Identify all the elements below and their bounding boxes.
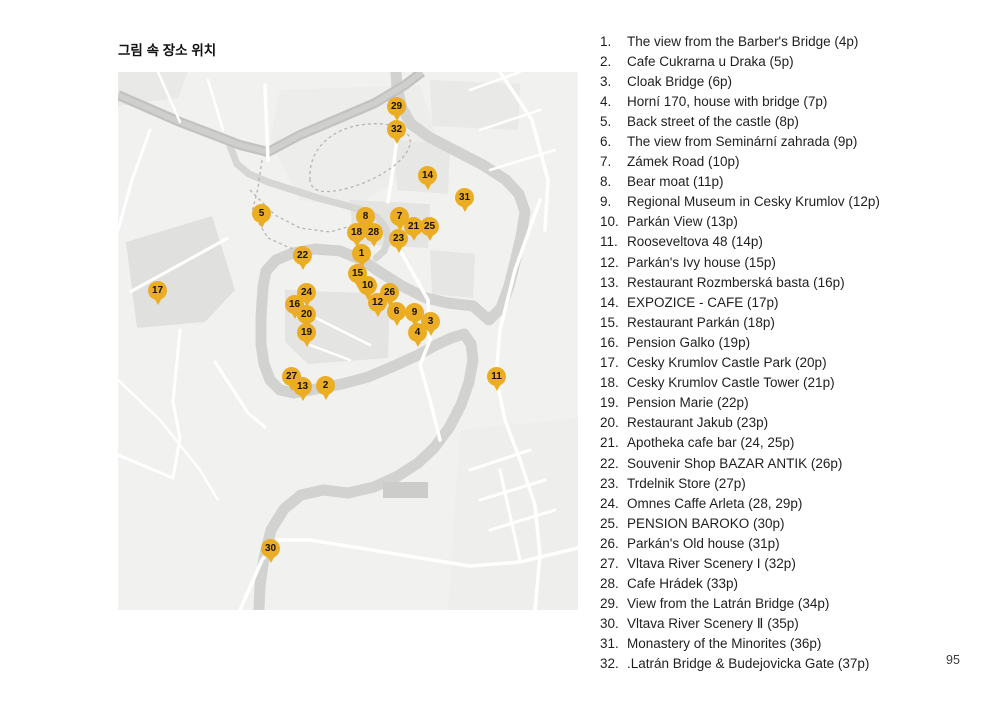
list-item: 15.Restaurant Parkán (18p)	[600, 312, 900, 332]
map-pin-2: 2	[316, 376, 335, 395]
list-item-label: EXPOZICE - CAFE (17p)	[627, 295, 779, 310]
building-block	[430, 250, 475, 298]
list-item-label: .Latrán Bridge & Budejovicka Gate (37p)	[627, 656, 869, 671]
list-item: 2.Cafe Cukrarna u Draka (5p)	[600, 51, 900, 71]
map-pin-6: 6	[387, 302, 406, 321]
list-item: 19.Pension Marie (22p)	[600, 393, 900, 413]
list-item-label: Cesky Krumlov Castle Tower (21p)	[627, 375, 835, 390]
list-item-number: 24.	[600, 496, 627, 511]
list-item-number: 16.	[600, 335, 627, 350]
list-item-number: 25.	[600, 516, 627, 531]
map-pin-29: 29	[387, 97, 406, 116]
list-item: 32..Latrán Bridge & Budejovicka Gate (37…	[600, 654, 900, 674]
list-item: 22.Souvenir Shop BAZAR ANTIK (26p)	[600, 453, 900, 473]
list-item: 3.Cloak Bridge (6p)	[600, 71, 900, 91]
list-item: 20.Restaurant Jakub (23p)	[600, 413, 900, 433]
list-item-number: 32.	[600, 656, 627, 671]
list-item-label: Restaurant Parkán (18p)	[627, 315, 775, 330]
book-page: { "page": { "title": "그림 속 장소 위치", "page…	[0, 0, 1000, 705]
list-item-number: 31.	[600, 636, 627, 651]
list-item: 10.Parkán View (13p)	[600, 212, 900, 232]
list-item-number: 21.	[600, 435, 627, 450]
building-block	[383, 482, 428, 498]
list-item: 31.Monastery of the Minorites (36p)	[600, 634, 900, 654]
city-map: 1234567891011121314151617181920212223242…	[118, 72, 578, 610]
list-item: 4.Horní 170, house with bridge (7p)	[600, 91, 900, 111]
list-item-label: Back street of the castle (8p)	[627, 114, 799, 129]
list-item-label: View from the Latrán Bridge (34p)	[627, 596, 829, 611]
list-item-number: 30.	[600, 616, 627, 631]
list-item: 6.The view from Seminární zahrada (9p)	[600, 131, 900, 151]
castle-park-area	[126, 216, 235, 328]
list-item-label: The view from Seminární zahrada (9p)	[627, 134, 857, 149]
list-item: 30.Vltava River Scenery Ⅱ (35p)	[600, 614, 900, 634]
map-pin-28: 28	[364, 223, 383, 242]
list-item-number: 19.	[600, 395, 627, 410]
list-item: 26.Parkán's Old house (31p)	[600, 533, 900, 553]
list-item-number: 10.	[600, 214, 627, 229]
list-item-number: 29.	[600, 596, 627, 611]
page-number: 95	[938, 653, 968, 667]
map-pin-20: 20	[297, 305, 316, 324]
list-item-number: 28.	[600, 576, 627, 591]
list-item-label: Horní 170, house with bridge (7p)	[627, 94, 827, 109]
map-canvas	[118, 72, 578, 610]
list-item-label: Parkán's Old house (31p)	[627, 536, 780, 551]
list-item-label: Vltava River Scenery I (32p)	[627, 556, 796, 571]
list-item: 11.Rooseveltova 48 (14p)	[600, 232, 900, 252]
list-item: 1.The view from the Barber's Bridge (4p)	[600, 31, 900, 51]
list-item-label: Trdelnik Store (27p)	[627, 476, 746, 491]
list-item: 24.Omnes Caffe Arleta (28, 29p)	[600, 493, 900, 513]
list-item-number: 22.	[600, 456, 627, 471]
list-item-number: 27.	[600, 556, 627, 571]
list-item-number: 5.	[600, 114, 627, 129]
list-item-number: 23.	[600, 476, 627, 491]
list-item-label: Pension Galko (19p)	[627, 335, 750, 350]
map-pin-12: 12	[368, 293, 387, 312]
map-pin-22: 22	[293, 246, 312, 265]
map-pin-11: 11	[487, 367, 506, 386]
list-item-number: 4.	[600, 94, 627, 109]
list-item: 5.Back street of the castle (8p)	[600, 111, 900, 131]
map-pin-14: 14	[418, 166, 437, 185]
list-item-label: Monastery of the Minorites (36p)	[627, 636, 821, 651]
list-item-label: Rooseveltova 48 (14p)	[627, 234, 763, 249]
list-item: 9.Regional Museum in Cesky Krumlov (12p)	[600, 192, 900, 212]
list-item-number: 13.	[600, 275, 627, 290]
list-item-number: 18.	[600, 375, 627, 390]
district-area	[448, 418, 578, 610]
map-pin-25: 25	[420, 217, 439, 236]
list-item: 21.Apotheka cafe bar (24, 25p)	[600, 433, 900, 453]
map-pin-1: 1	[352, 244, 371, 263]
list-item-label: Apotheka cafe bar (24, 25p)	[627, 435, 794, 450]
map-pin-10: 10	[358, 276, 377, 295]
list-item-number: 1.	[600, 34, 627, 49]
list-item-label: Cafe Hrádek (33p)	[627, 576, 738, 591]
map-pin-19: 19	[297, 323, 316, 342]
map-pin-31: 31	[455, 188, 474, 207]
list-item: 16.Pension Galko (19p)	[600, 332, 900, 352]
list-item: 12.Parkán's Ivy house (15p)	[600, 252, 900, 272]
list-item-label: Vltava River Scenery Ⅱ (35p)	[627, 616, 799, 632]
map-pin-17: 17	[148, 281, 167, 300]
list-item-number: 3.	[600, 74, 627, 89]
list-item-label: Souvenir Shop BAZAR ANTIK (26p)	[627, 456, 842, 471]
list-item-number: 2.	[600, 54, 627, 69]
map-pin-4: 4	[408, 323, 427, 342]
list-item: 25.PENSION BAROKO (30p)	[600, 513, 900, 533]
list-item-label: Restaurant Rozmberská basta (16p)	[627, 275, 845, 290]
list-item: 13.Restaurant Rozmberská basta (16p)	[600, 272, 900, 292]
map-pin-32: 32	[387, 120, 406, 139]
list-item: 18.Cesky Krumlov Castle Tower (21p)	[600, 373, 900, 393]
list-item-number: 7.	[600, 154, 627, 169]
map-pin-5: 5	[252, 204, 271, 223]
list-item: 29.View from the Latrán Bridge (34p)	[600, 594, 900, 614]
list-item-number: 26.	[600, 536, 627, 551]
place-list: 1.The view from the Barber's Bridge (4p)…	[600, 31, 900, 674]
list-item-number: 9.	[600, 194, 627, 209]
list-item: 14.EXPOZICE - CAFE (17p)	[600, 292, 900, 312]
list-item-label: The view from the Barber's Bridge (4p)	[627, 34, 858, 49]
list-item: 23.Trdelnik Store (27p)	[600, 473, 900, 493]
map-pin-30: 30	[261, 539, 280, 558]
list-item-number: 11.	[600, 234, 627, 249]
list-item: 27.Vltava River Scenery I (32p)	[600, 553, 900, 573]
map-pin-13: 13	[293, 377, 312, 396]
list-item-label: Pension Marie (22p)	[627, 395, 749, 410]
list-item: 8.Bear moat (11p)	[600, 172, 900, 192]
list-item-label: Parkán's Ivy house (15p)	[627, 255, 776, 270]
map-pin-23: 23	[389, 229, 408, 248]
list-item-label: Bear moat (11p)	[627, 174, 724, 189]
list-item-number: 8.	[600, 174, 627, 189]
list-item-label: Zámek Road (10p)	[627, 154, 740, 169]
list-item-label: Regional Museum in Cesky Krumlov (12p)	[627, 194, 880, 209]
page-title: 그림 속 장소 위치	[118, 39, 216, 59]
list-item-number: 6.	[600, 134, 627, 149]
list-item-number: 20.	[600, 415, 627, 430]
list-item-label: Cafe Cukrarna u Draka (5p)	[627, 54, 794, 69]
list-item-label: Omnes Caffe Arleta (28, 29p)	[627, 496, 802, 511]
list-item-number: 12.	[600, 255, 627, 270]
list-item-number: 17.	[600, 355, 627, 370]
list-item-label: Restaurant Jakub (23p)	[627, 415, 768, 430]
list-item-label: Cesky Krumlov Castle Park (20p)	[627, 355, 827, 370]
list-item: 17.Cesky Krumlov Castle Park (20p)	[600, 353, 900, 373]
list-item-label: PENSION BAROKO (30p)	[627, 516, 785, 531]
list-item-label: Cloak Bridge (6p)	[627, 74, 732, 89]
list-item-number: 15.	[600, 315, 627, 330]
list-item: 28.Cafe Hrádek (33p)	[600, 574, 900, 594]
list-item-label: Parkán View (13p)	[627, 214, 738, 229]
list-item-number: 14.	[600, 295, 627, 310]
list-item: 7.Zámek Road (10p)	[600, 152, 900, 172]
